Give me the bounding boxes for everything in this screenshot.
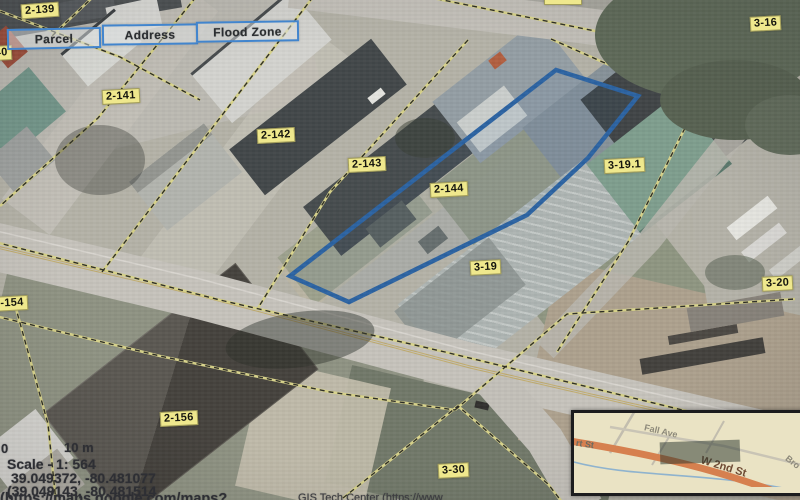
parcel-label-3-19: 3-19: [470, 259, 502, 276]
parcel-label-3-19.1: 3-19.1: [604, 157, 646, 174]
parcel-label-2-141: 2-141: [102, 88, 140, 105]
parcel-label-2-142: 2-142: [257, 127, 295, 144]
address-button[interactable]: Address: [102, 23, 198, 45]
parcel-button[interactable]: Parcel: [7, 27, 101, 50]
overview-inset-map[interactable]: rt St Fall Ave W 2nd St Bro: [571, 410, 800, 496]
parcel-label-3-30: 3-30: [438, 462, 470, 479]
parcel-label-2-139: 2-139: [21, 2, 60, 20]
parcel-label-2-143: 2-143: [348, 156, 386, 173]
parcel-label-2-156: 2-156: [160, 410, 198, 427]
parcel-label-2-144: 2-144: [430, 181, 468, 198]
inset-viewport-indicator[interactable]: [660, 440, 741, 465]
flood-zone-button[interactable]: Flood Zone: [196, 20, 299, 42]
imagery-attribution-text: GIS Tech Center (https://www: [298, 492, 443, 500]
parcel-label-2-154: 2-154: [0, 295, 28, 312]
parcel-label-3-20: 3-20: [762, 275, 794, 292]
source-url-text: (https://maps.google.com/maps?: [0, 491, 227, 500]
parcel-label-partial: [544, 0, 582, 5]
parcel-label-3-16: 3-16: [750, 15, 782, 32]
gis-map-view[interactable]: 2-1392-1402-1412-1422-1432-1443-19.13-16…: [0, 0, 800, 500]
scalebar-distance-label: 10 m: [64, 440, 94, 455]
overview-inset-canvas: rt St Fall Ave W 2nd St Bro: [574, 413, 800, 493]
scalebar-zero-label: 0: [1, 441, 8, 456]
